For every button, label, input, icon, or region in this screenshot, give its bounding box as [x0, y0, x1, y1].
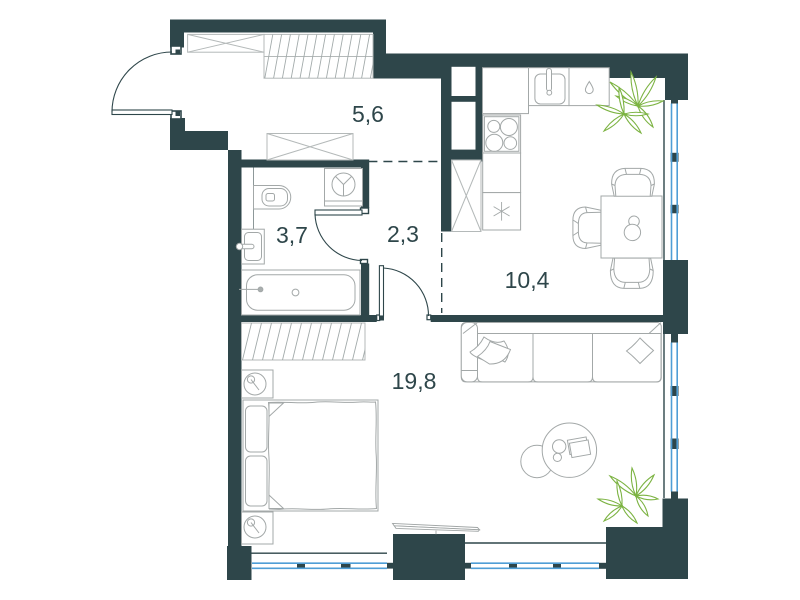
svg-text:5,6: 5,6: [352, 101, 384, 127]
svg-text:3,7: 3,7: [276, 222, 308, 248]
svg-text:19,8: 19,8: [392, 368, 437, 394]
svg-text:2,3: 2,3: [387, 221, 419, 247]
svg-text:10,4: 10,4: [505, 267, 550, 293]
